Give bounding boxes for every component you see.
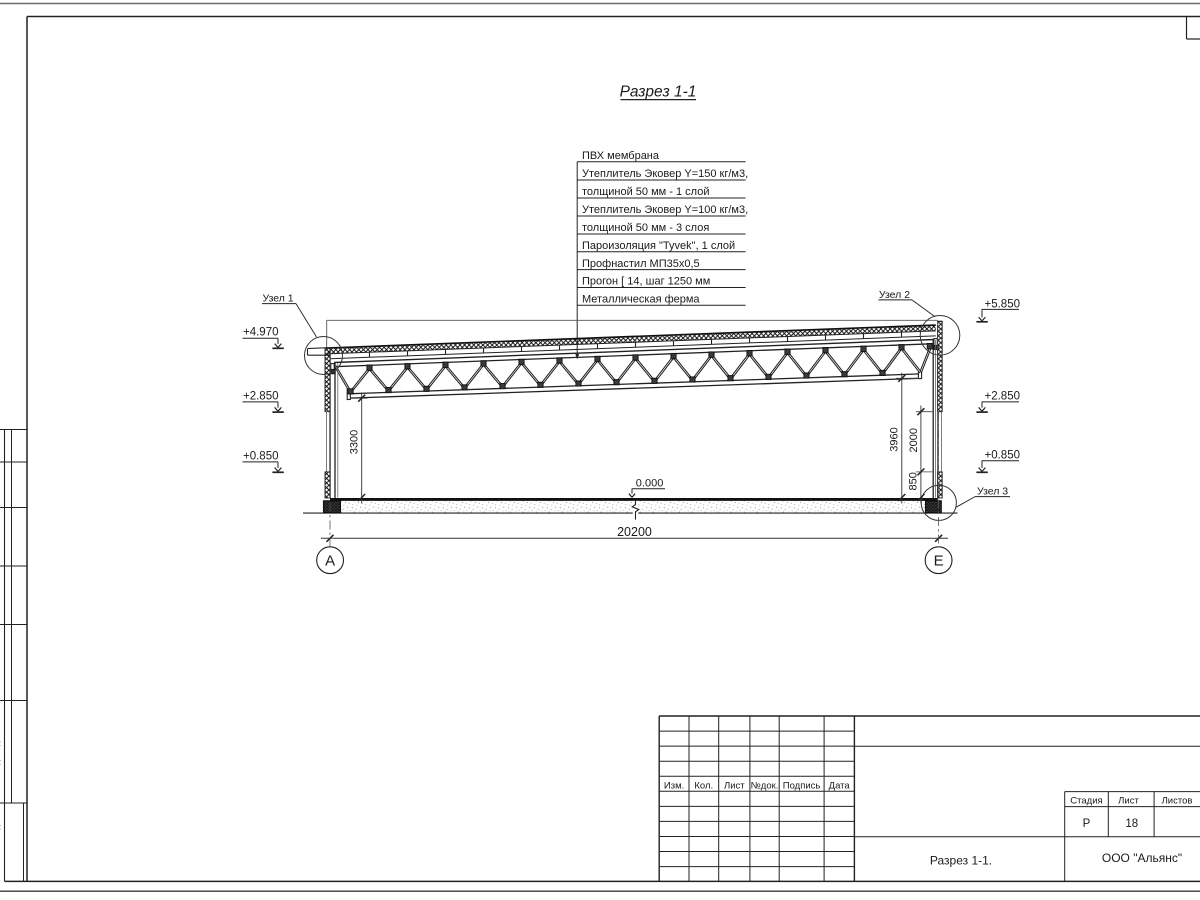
svg-text:+4.970: +4.970 bbox=[243, 326, 279, 338]
svg-text:ПВХ мембрана: ПВХ мембрана bbox=[582, 150, 660, 162]
svg-text:2000: 2000 bbox=[908, 428, 920, 452]
svg-text:+2.850: +2.850 bbox=[985, 390, 1021, 402]
svg-text:Утеплитель Эковер Y=150 кг/м3,: Утеплитель Эковер Y=150 кг/м3, bbox=[582, 168, 748, 180]
svg-text:Узел 3: Узел 3 bbox=[977, 485, 1008, 497]
svg-text:Кол.: Кол. bbox=[694, 781, 713, 792]
svg-text:толщиной 50 мм - 1 слой: толщиной 50 мм - 1 слой bbox=[582, 186, 709, 198]
svg-text:толщиной 50 мм - 3 слоя: толщиной 50 мм - 3 слоя bbox=[582, 222, 709, 234]
svg-text:Разрез 1-1: Разрез 1-1 bbox=[620, 84, 697, 101]
svg-text:Узел 2: Узел 2 bbox=[879, 289, 910, 301]
svg-text:20200: 20200 bbox=[617, 525, 652, 539]
svg-text:Металлическая ферма: Металлическая ферма bbox=[582, 294, 700, 306]
svg-text:№док.: №док. bbox=[751, 781, 779, 792]
svg-text:Лист: Лист bbox=[724, 781, 745, 792]
svg-text:Листов: Листов bbox=[1162, 796, 1193, 807]
svg-text:Стадия: Стадия bbox=[1070, 796, 1102, 807]
svg-text:Утеплитель Эковер Y=100 кг/м3,: Утеплитель Эковер Y=100 кг/м3, bbox=[582, 204, 748, 216]
svg-text:Подпись: Подпись bbox=[783, 781, 821, 792]
svg-text:850: 850 bbox=[908, 472, 920, 490]
svg-text:18: 18 bbox=[1125, 818, 1138, 830]
svg-text:Подп. и дата: Подп. и дата bbox=[0, 729, 1, 774]
svg-text:+2.850: +2.850 bbox=[243, 390, 279, 402]
svg-text:Дата: Дата bbox=[829, 781, 851, 792]
svg-text:+0.850: +0.850 bbox=[985, 449, 1021, 461]
svg-text:Взам. инв. №: Взам. инв. № bbox=[0, 640, 1, 686]
svg-text:Инв. № подл.: Инв. № подл. bbox=[0, 819, 1, 866]
svg-text:А: А bbox=[325, 553, 335, 570]
svg-text:Прогон [ 14, шаг 1250 мм: Прогон [ 14, шаг 1250 мм bbox=[582, 276, 710, 288]
svg-text:Изм.: Изм. bbox=[664, 781, 684, 792]
svg-text:3300: 3300 bbox=[349, 430, 361, 454]
svg-text:3960: 3960 bbox=[889, 427, 901, 451]
svg-text:ООО "Альянс": ООО "Альянс" bbox=[1102, 851, 1182, 865]
svg-text:Разрез 1-1.: Разрез 1-1. bbox=[930, 854, 992, 868]
svg-text:Е: Е bbox=[934, 553, 944, 570]
svg-text:+5.850: +5.850 bbox=[985, 298, 1021, 310]
svg-text:Лист: Лист bbox=[1118, 796, 1139, 807]
svg-text:Узел 1: Узел 1 bbox=[263, 293, 294, 305]
svg-text:Профнастил МП35х0,5: Профнастил МП35х0,5 bbox=[582, 258, 700, 270]
svg-text:Пароизоляция "Tyvek", 1 слой: Пароизоляция "Tyvek", 1 слой bbox=[582, 240, 735, 252]
svg-text:0.000: 0.000 bbox=[636, 477, 664, 489]
svg-text:Р: Р bbox=[1083, 818, 1091, 830]
svg-text:+0.850: +0.850 bbox=[243, 450, 279, 462]
